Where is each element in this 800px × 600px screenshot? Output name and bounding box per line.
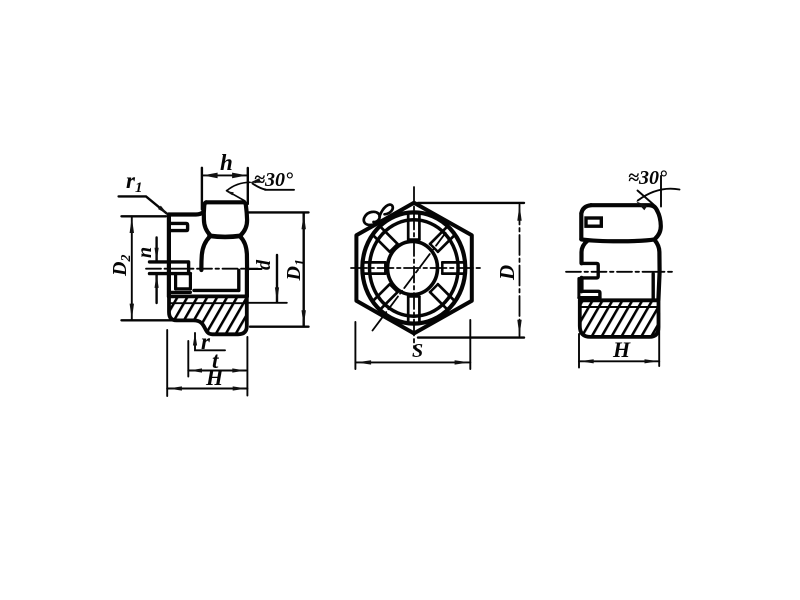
- svg-text:S: S: [412, 340, 423, 362]
- svg-text:r: r: [201, 329, 211, 354]
- svg-text:d: d: [253, 259, 275, 270]
- svg-text:n: n: [134, 247, 156, 258]
- svg-text:D: D: [495, 265, 519, 281]
- svg-text:H: H: [205, 365, 224, 390]
- svg-text:h: h: [220, 150, 233, 175]
- svg-text:H: H: [612, 337, 631, 362]
